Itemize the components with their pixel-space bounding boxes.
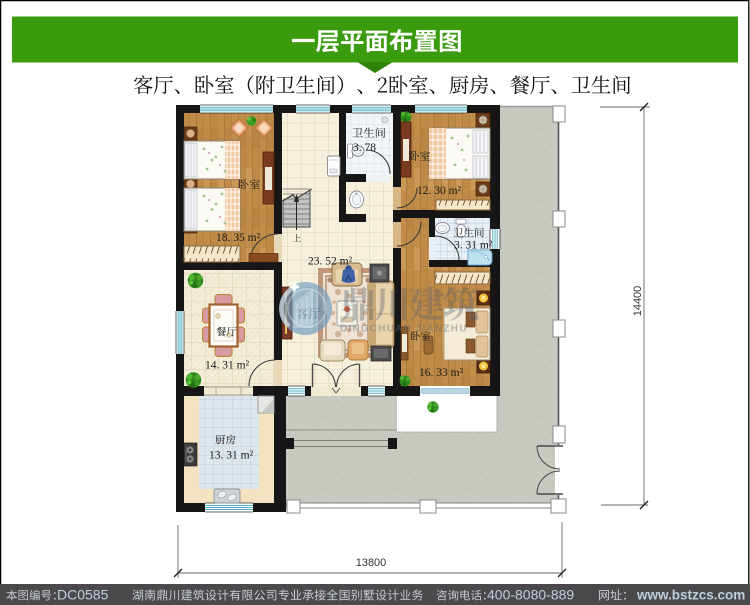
svg-text:18. 35 m²: 18. 35 m² <box>216 232 261 244</box>
svg-text:3. 31 m²: 3. 31 m² <box>454 240 493 252</box>
svg-text:23. 52 m²: 23. 52 m² <box>308 256 353 268</box>
svg-text:DC0585: DC0585 <box>57 587 109 603</box>
svg-text:www.bstzcs.com: www.bstzcs.com <box>636 588 745 603</box>
svg-text:13. 31 m²: 13. 31 m² <box>209 450 254 462</box>
svg-text:3. 78: 3. 78 <box>353 142 376 154</box>
svg-text:16. 33 m²: 16. 33 m² <box>419 367 464 379</box>
svg-text:14. 31 m²: 14. 31 m² <box>205 360 250 372</box>
svg-text:400-8080-889: 400-8080-889 <box>487 587 574 603</box>
svg-text:DINGCHUAN JIANZHU: DINGCHUAN JIANZHU <box>340 324 468 335</box>
svg-text:12. 30 m²: 12. 30 m² <box>417 185 462 197</box>
svg-text:13800: 13800 <box>356 557 387 569</box>
svg-text:14400: 14400 <box>632 286 644 317</box>
